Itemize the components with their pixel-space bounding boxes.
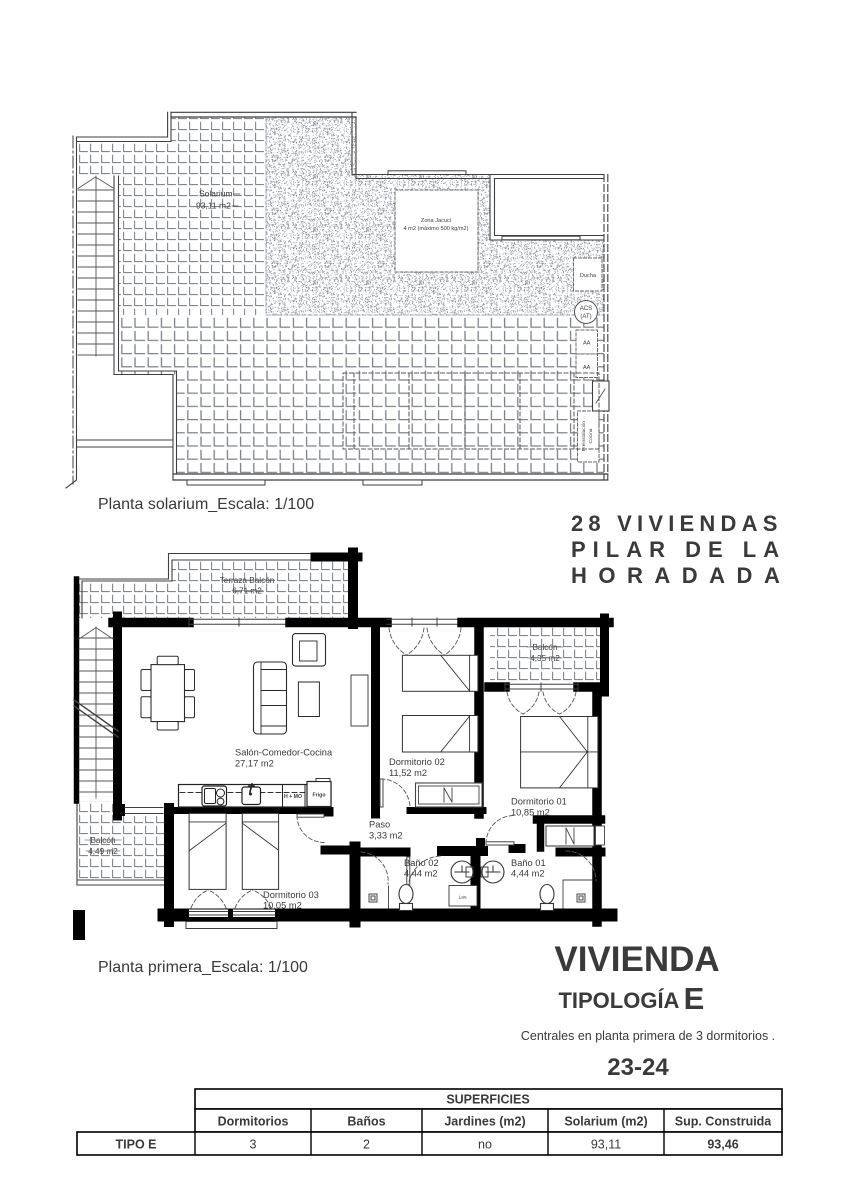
svg-text:3: 3 xyxy=(250,1138,257,1152)
svg-text:4,35 m2: 4,35 m2 xyxy=(530,654,560,663)
svg-text:4,44 m2: 4,44 m2 xyxy=(511,869,545,879)
svg-text:Dormitorios: Dormitorios xyxy=(218,1115,289,1129)
svg-text:Preinstalación: Preinstalación xyxy=(581,421,587,451)
svg-text:Baño 02: Baño 02 xyxy=(404,858,439,868)
svg-text:4,49 m2: 4,49 m2 xyxy=(88,847,118,856)
svg-text:Baños: Baños xyxy=(347,1115,385,1129)
svg-text:4 m2 (máximo 500 kg/m2): 4 m2 (máximo 500 kg/m2) xyxy=(404,226,469,232)
svg-text:Cocina: Cocina xyxy=(588,428,594,443)
svg-text:Baño 01: Baño 01 xyxy=(511,858,546,868)
svg-text:Dormitorio 01: Dormitorio 01 xyxy=(511,797,567,807)
svg-text:93,11 m2: 93,11 m2 xyxy=(196,201,231,211)
svg-text:TIPOLOGÍA: TIPOLOGÍA xyxy=(558,988,685,1013)
svg-text:VIVIENDA: VIVIENDA xyxy=(554,940,719,979)
svg-text:AA: AA xyxy=(583,365,591,371)
svg-text:Balcón: Balcón xyxy=(90,836,115,845)
svg-text:Ducha: Ducha xyxy=(580,273,597,279)
svg-text:Sup. Construida: Sup. Construida xyxy=(675,1115,773,1129)
svg-text:Zona Jacuci: Zona Jacuci xyxy=(421,218,451,224)
svg-text:11,52 m2: 11,52 m2 xyxy=(389,768,427,778)
svg-text:HORADADA: HORADADA xyxy=(571,563,791,588)
svg-text:Frigo: Frigo xyxy=(313,793,326,799)
svg-text:Dormitorio 03: Dormitorio 03 xyxy=(263,890,319,900)
svg-text:10,85 m2: 10,85 m2 xyxy=(511,808,550,818)
svg-text:H + MO: H + MO xyxy=(284,794,302,800)
svg-text:93,46: 93,46 xyxy=(707,1138,738,1152)
svg-text:Planta primera_Escala: 1/100: Planta primera_Escala: 1/100 xyxy=(98,959,308,976)
svg-text:93,11: 93,11 xyxy=(591,1138,621,1152)
svg-text:28 VIVIENDAS: 28 VIVIENDAS xyxy=(571,511,783,536)
svg-text:Paso: Paso xyxy=(369,820,390,830)
svg-text:27,17 m2: 27,17 m2 xyxy=(235,759,274,769)
svg-text:(AT): (AT) xyxy=(580,314,591,320)
svg-text:Jardines (m2): Jardines (m2) xyxy=(444,1115,525,1129)
svg-text:Centrales en planta primera de: Centrales en planta primera de 3 dormito… xyxy=(521,1029,775,1043)
svg-text:Salón-Comedor-Cocina: Salón-Comedor-Cocina xyxy=(235,748,333,758)
svg-text:10,05 m2: 10,05 m2 xyxy=(263,901,302,911)
svg-text:3,33 m2: 3,33 m2 xyxy=(369,830,403,840)
svg-text:ACS: ACS xyxy=(580,306,592,312)
svg-text:Lav.: Lav. xyxy=(459,895,468,901)
svg-text:E: E xyxy=(684,981,705,1016)
svg-text:6,71 m2: 6,71 m2 xyxy=(232,587,262,596)
svg-text:AA: AA xyxy=(583,341,591,347)
svg-text:2: 2 xyxy=(363,1138,370,1152)
svg-text:no: no xyxy=(478,1138,492,1152)
svg-text:SUPERFICIES: SUPERFICIES xyxy=(446,1093,529,1107)
svg-text:4,44 m2: 4,44 m2 xyxy=(404,869,438,879)
svg-text:Solarium: Solarium xyxy=(199,189,233,199)
svg-text:Balcón: Balcón xyxy=(532,643,557,652)
svg-text:Planta solarium_Escala: 1/100: Planta solarium_Escala: 1/100 xyxy=(98,496,314,513)
svg-text:TIPO E: TIPO E xyxy=(116,1138,157,1152)
svg-text:Solarium (m2): Solarium (m2) xyxy=(564,1115,647,1129)
svg-text:Terraza Balcón: Terraza Balcón xyxy=(220,576,275,585)
svg-text:Dormitorio 02: Dormitorio 02 xyxy=(389,757,445,767)
svg-text:PILAR DE LA: PILAR DE LA xyxy=(571,537,786,562)
svg-text:23-24: 23-24 xyxy=(607,1054,669,1081)
